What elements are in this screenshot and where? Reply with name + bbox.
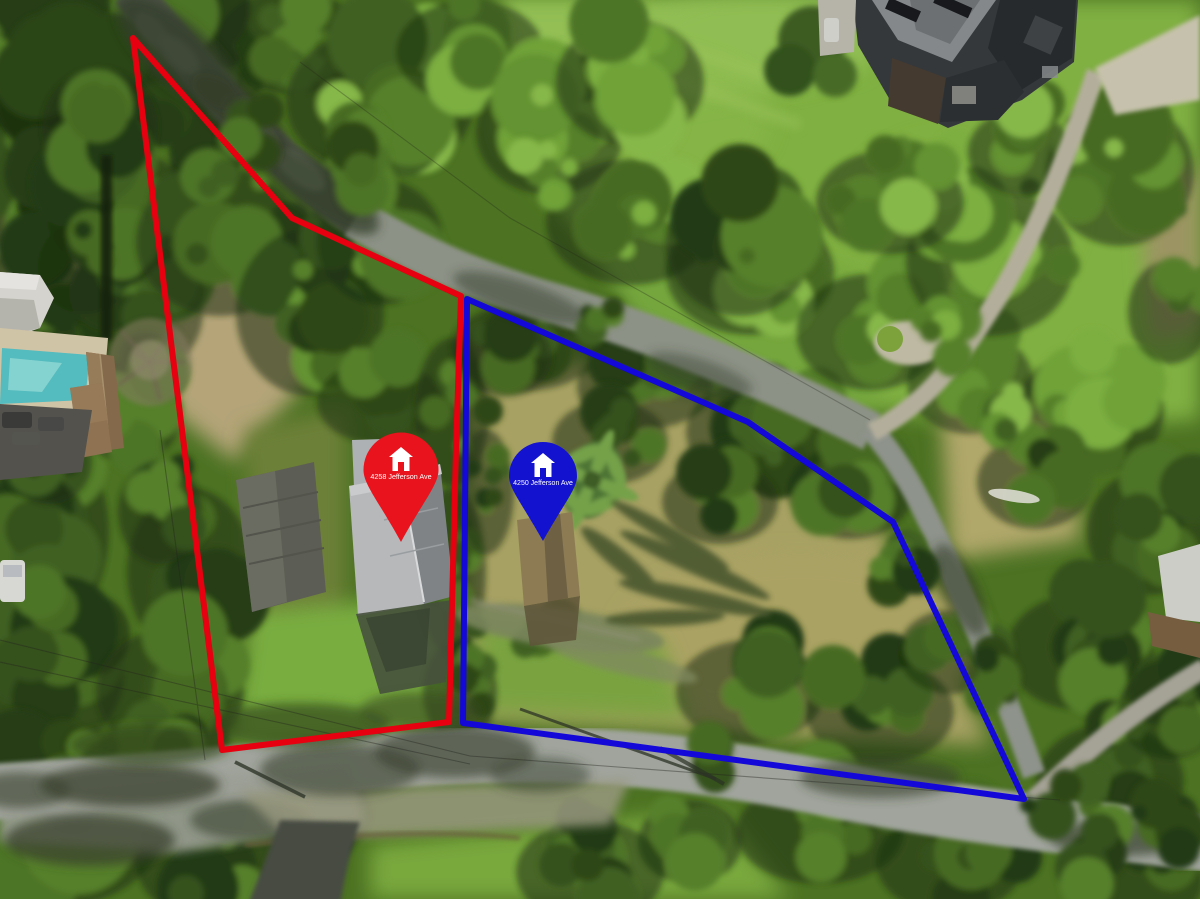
svg-text:4258 Jefferson Ave: 4258 Jefferson Ave — [370, 472, 431, 481]
svg-text:4250 Jefferson Ave: 4250 Jefferson Ave — [513, 480, 573, 487]
